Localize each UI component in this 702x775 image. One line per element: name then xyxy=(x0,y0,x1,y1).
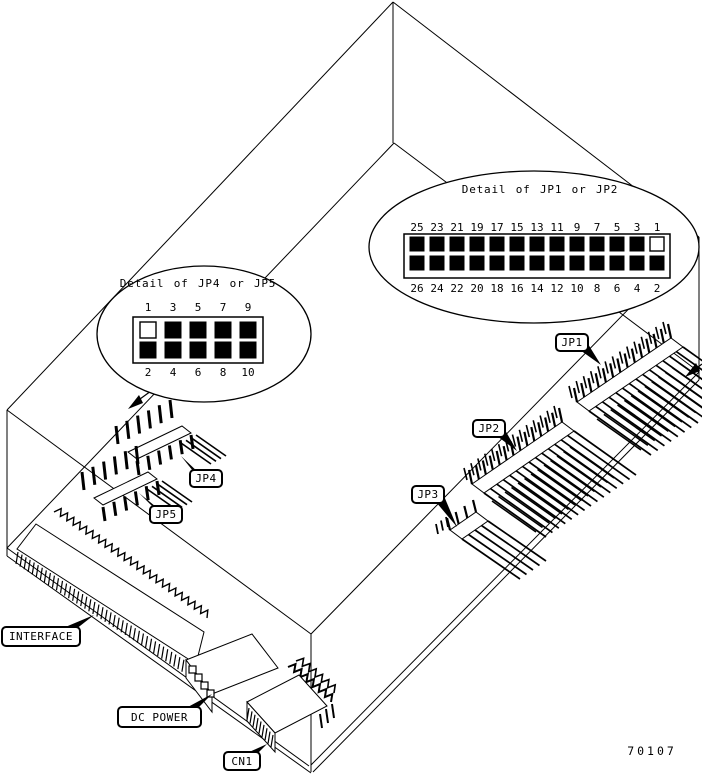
header-tooth xyxy=(531,427,534,441)
header-tooth xyxy=(591,371,594,383)
pin-number: 10 xyxy=(570,282,583,295)
pin-number: 1 xyxy=(145,301,152,314)
pin-square xyxy=(510,256,524,270)
figure-part-number: 70107 xyxy=(600,744,702,758)
header-tooth xyxy=(148,456,150,470)
pin-stroke xyxy=(326,709,328,723)
header-tooth xyxy=(559,408,562,422)
header-tooth xyxy=(157,481,159,495)
pin-square xyxy=(215,322,231,338)
pin-stroke xyxy=(542,453,604,497)
header-tooth xyxy=(159,405,161,423)
connector-interface xyxy=(16,509,208,678)
pin-stroke xyxy=(629,384,691,428)
pin-stroke xyxy=(332,704,334,718)
contact-stroke xyxy=(158,644,160,656)
contact-stroke xyxy=(36,565,38,577)
pin-stroke xyxy=(523,466,585,510)
contact-stroke xyxy=(145,636,147,648)
header-tooth xyxy=(497,451,500,465)
contact-stroke xyxy=(81,594,83,606)
pin-number: 2 xyxy=(145,366,152,379)
contact-stroke xyxy=(178,657,180,669)
pin-stroke xyxy=(320,714,322,728)
pin-stroke xyxy=(157,484,187,505)
pin-square xyxy=(470,237,484,251)
header-tooth xyxy=(610,363,613,377)
board-wireframe xyxy=(7,2,699,773)
callout-jp4: JP4 xyxy=(189,469,223,488)
header-tooth xyxy=(136,446,138,464)
pin-number: 24 xyxy=(430,282,444,295)
connector-jp3 xyxy=(436,500,546,579)
pin-square xyxy=(240,342,256,358)
contact-stroke xyxy=(121,620,123,632)
pin-square xyxy=(430,237,444,251)
pin-number: 25 xyxy=(410,221,423,234)
pin-square xyxy=(410,256,424,270)
header-tooth xyxy=(114,502,116,516)
callout-jp4-label: JP4 xyxy=(195,472,216,485)
header-tooth xyxy=(517,437,520,451)
pin-number: 6 xyxy=(614,282,621,295)
pin-number: 9 xyxy=(245,301,252,314)
pin-number: 19 xyxy=(470,221,483,234)
pin-number: 14 xyxy=(530,282,544,295)
contact-stroke xyxy=(28,560,30,572)
pin-number: 10 xyxy=(241,366,254,379)
contact-stroke xyxy=(16,552,18,564)
header-tooth xyxy=(469,470,472,484)
power-pin-hole xyxy=(195,674,202,681)
pin-stroke xyxy=(529,462,591,506)
header-tooth xyxy=(634,342,637,354)
contact-stroke xyxy=(170,652,172,664)
callout-jp2: JP2 xyxy=(472,419,506,438)
header-tooth xyxy=(93,467,95,485)
header-tooth xyxy=(554,406,557,418)
header-tooth xyxy=(82,472,84,490)
callout-jp5-label: JP5 xyxy=(155,508,176,521)
pin-square xyxy=(550,256,564,270)
callout-interface-label: INTERFACE xyxy=(9,630,73,643)
header-tooth xyxy=(552,413,555,427)
header-tooth xyxy=(603,368,606,382)
header-tooth xyxy=(180,440,182,454)
diagram-canvas: 2526232421221920171815161314111291078563… xyxy=(0,0,702,775)
header-tooth xyxy=(649,332,652,344)
pin-number: 5 xyxy=(614,221,621,234)
header-tooth xyxy=(654,334,657,348)
contact-stroke xyxy=(129,626,131,638)
header-tooth xyxy=(464,506,467,518)
pin-square xyxy=(570,256,584,270)
pin-square xyxy=(490,256,504,270)
header-tooth xyxy=(656,327,659,339)
header-tooth xyxy=(617,358,620,372)
pin-number: 16 xyxy=(510,282,523,295)
pin-stroke xyxy=(475,530,533,570)
header-tooth xyxy=(625,354,628,368)
callout-jp3-label: JP3 xyxy=(417,488,438,501)
header-tooth xyxy=(499,444,502,456)
header-tooth xyxy=(646,339,649,353)
detail-title-jp4-jp5: Detail of JP4 or JP5 xyxy=(38,277,358,290)
callout-jp1-label: JP1 xyxy=(561,336,582,349)
pin-number: 22 xyxy=(450,282,463,295)
header-tooth xyxy=(114,456,116,474)
pin-stroke xyxy=(469,535,527,575)
pin-square xyxy=(610,256,624,270)
pin-number: 8 xyxy=(594,282,601,295)
pin-stroke xyxy=(570,447,614,478)
pin-square xyxy=(430,256,444,270)
pin-square xyxy=(490,237,504,251)
pin-number: 8 xyxy=(220,366,227,379)
header-tooth xyxy=(598,366,601,378)
connector-jp4 xyxy=(116,400,226,475)
pin-square xyxy=(610,237,624,251)
header-tooth xyxy=(524,432,527,446)
header-tooth xyxy=(545,418,548,432)
header-tooth xyxy=(103,507,105,521)
header-tooth xyxy=(146,486,148,500)
header-tooth xyxy=(661,329,664,343)
pin-stroke xyxy=(162,481,192,502)
pin-number: 7 xyxy=(220,301,227,314)
pin-square xyxy=(510,237,524,251)
callout-jp1: JP1 xyxy=(555,333,589,352)
header-tooth xyxy=(116,426,118,444)
pin-stroke xyxy=(516,471,578,515)
header-tooth xyxy=(104,462,106,480)
contact-stroke xyxy=(20,555,22,567)
pin-stroke xyxy=(535,458,597,502)
header-tooth xyxy=(441,521,443,531)
contact-stroke xyxy=(73,589,75,601)
pin-number: 23 xyxy=(430,221,443,234)
header-tooth xyxy=(483,460,486,474)
detail-title-jp1-jp2: Detail of JP1 or JP2 xyxy=(380,183,700,196)
pin-number: 5 xyxy=(195,301,202,314)
power-pin-hole xyxy=(207,690,214,697)
pin-square xyxy=(630,237,644,251)
pin-stroke xyxy=(482,526,540,566)
header-tooth xyxy=(605,361,608,373)
pin-stroke xyxy=(191,438,221,459)
pin-square xyxy=(570,237,584,251)
header-tooth xyxy=(641,337,644,349)
header-tooth xyxy=(533,420,536,432)
pin-square xyxy=(450,237,464,251)
header-tooth xyxy=(464,468,467,480)
header-tooth xyxy=(526,425,529,437)
callout-dc-power: DC POWER xyxy=(117,706,202,728)
header-tooth xyxy=(547,411,550,423)
contact-stroke xyxy=(141,633,143,645)
pin-square-open-pin1 xyxy=(140,322,156,338)
pin-square-open-pin1 xyxy=(650,237,664,251)
callout-interface: INTERFACE xyxy=(1,626,81,647)
header-tooth xyxy=(519,430,522,442)
contact-stroke xyxy=(182,660,184,672)
callout-jp2-label: JP2 xyxy=(478,422,499,435)
contact-stroke xyxy=(85,597,87,609)
pin-number: 2 xyxy=(654,282,661,295)
header-tooth xyxy=(135,491,137,505)
header-tooth xyxy=(473,500,476,512)
pin-number: 7 xyxy=(594,221,601,234)
header-tooth xyxy=(191,435,193,449)
header-tooth xyxy=(490,456,493,470)
pin-square xyxy=(240,322,256,338)
pin-stroke xyxy=(568,435,630,479)
header-tooth xyxy=(492,449,495,461)
pin1-arrow-icon xyxy=(128,395,143,409)
pin-number: 1 xyxy=(654,221,661,234)
header-tooth xyxy=(620,352,623,364)
header-tooth xyxy=(125,451,127,469)
callout-jp3: JP3 xyxy=(411,485,445,504)
pin-number: 20 xyxy=(470,282,483,295)
pin-number: 12 xyxy=(550,282,563,295)
pin-number: 4 xyxy=(634,282,641,295)
header-tooth xyxy=(576,381,579,393)
pin-number: 13 xyxy=(530,221,543,234)
contact-stroke xyxy=(154,641,156,653)
pin-square xyxy=(190,342,206,358)
header-tooth xyxy=(588,378,591,392)
pin-square xyxy=(190,322,206,338)
callout-jp5: JP5 xyxy=(149,505,183,524)
header-tooth xyxy=(148,410,150,428)
pin-square xyxy=(470,256,484,270)
pin-square xyxy=(550,237,564,251)
contact-stroke xyxy=(162,647,164,659)
pin-square xyxy=(590,237,604,251)
contact-stroke xyxy=(32,563,34,575)
contact-stroke xyxy=(133,628,135,640)
pin-number: 15 xyxy=(510,221,523,234)
header-tooth xyxy=(574,388,577,402)
header-tooth xyxy=(627,347,630,359)
callout-cn1-label: CN1 xyxy=(231,755,252,768)
technical-diagram-page: 2526232421221920171815161314111291078563… xyxy=(0,0,702,775)
pin-square xyxy=(630,256,644,270)
pin-number: 3 xyxy=(170,301,177,314)
header-tooth xyxy=(668,324,671,338)
pin-stroke xyxy=(488,521,546,561)
pin-stroke xyxy=(196,435,226,456)
pin-square xyxy=(590,256,604,270)
header-tooth xyxy=(569,386,572,398)
power-pin-hole xyxy=(201,682,208,689)
contact-stroke xyxy=(89,599,91,611)
header-tooth xyxy=(663,322,666,334)
pin-number: 26 xyxy=(410,282,423,295)
contact-stroke xyxy=(166,649,168,661)
header-tooth xyxy=(159,451,161,465)
contact-stroke xyxy=(137,631,139,643)
pin-stroke xyxy=(503,480,565,524)
header-tooth xyxy=(639,344,642,358)
pin-number: 4 xyxy=(170,366,177,379)
header-tooth xyxy=(540,416,543,428)
pin-square xyxy=(530,256,544,270)
pin-square xyxy=(215,342,231,358)
contact-stroke xyxy=(93,602,95,614)
header-tooth xyxy=(125,497,127,511)
pin-square xyxy=(165,322,181,338)
header-tooth xyxy=(456,512,459,524)
pin-square xyxy=(450,256,464,270)
callout-cn1: CN1 xyxy=(223,751,261,771)
pin-number: 21 xyxy=(450,221,463,234)
header-tooth xyxy=(504,446,507,460)
pin-number: 11 xyxy=(550,221,563,234)
header-tooth xyxy=(632,349,635,363)
pin-number: 18 xyxy=(490,282,503,295)
pin-square xyxy=(140,342,156,358)
header-tooth xyxy=(476,465,479,479)
pin-square xyxy=(650,256,664,270)
pin-number: 6 xyxy=(195,366,202,379)
header-tooth xyxy=(612,356,615,368)
pin-stroke xyxy=(596,406,658,450)
header-tooth xyxy=(485,454,488,466)
header-tooth xyxy=(538,422,541,436)
header-tooth xyxy=(583,376,586,388)
contact-stroke xyxy=(77,591,79,603)
pin1-arrow-icon xyxy=(685,363,700,377)
callout-dc-power-label: DC POWER xyxy=(131,711,188,724)
pin-stroke xyxy=(462,539,520,579)
contact-stroke xyxy=(174,654,176,666)
pin-square xyxy=(165,342,181,358)
header-tooth xyxy=(170,400,172,418)
header-tooth xyxy=(596,373,599,387)
header-tooth xyxy=(138,416,140,434)
header-tooth xyxy=(581,383,584,397)
header-tooth xyxy=(436,524,438,534)
power-pin-hole xyxy=(189,666,196,673)
pin-number: 3 xyxy=(634,221,641,234)
pin-number: 17 xyxy=(490,221,503,234)
header-tooth xyxy=(169,445,171,459)
pin-stroke xyxy=(186,440,216,461)
pin-stroke xyxy=(510,475,572,519)
pin-number: 9 xyxy=(574,221,581,234)
contact-stroke xyxy=(24,557,26,569)
header-tooth xyxy=(127,421,129,439)
pin-square xyxy=(530,237,544,251)
contact-stroke xyxy=(125,623,127,635)
contact-stroke xyxy=(150,639,152,651)
pin-square xyxy=(410,237,424,251)
